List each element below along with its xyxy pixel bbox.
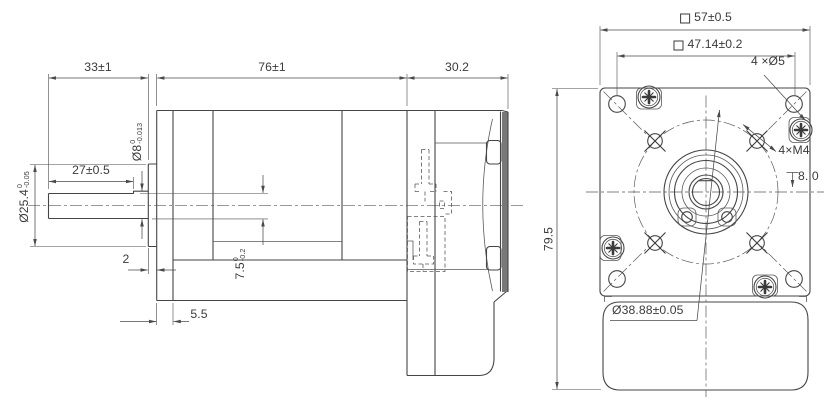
drawing-linework bbox=[0, 0, 840, 400]
dim-flat-length: 27±0.5 bbox=[72, 164, 110, 177]
square-size-value: 57±0.5 bbox=[694, 11, 732, 24]
shaft-dia-tol-lower: -0.013 bbox=[136, 123, 143, 144]
hole-pitch-value: 47.14±0.2 bbox=[687, 38, 742, 51]
rear-housing-outline bbox=[407, 111, 508, 376]
dim-front-length: 33±1 bbox=[84, 61, 111, 74]
square-symbol bbox=[680, 13, 690, 23]
depth-symbol bbox=[787, 173, 799, 188]
rear-cover-strip bbox=[502, 112, 508, 292]
square-symbol bbox=[673, 40, 683, 50]
side-view bbox=[28, 74, 524, 376]
shaft-outline bbox=[49, 191, 149, 218]
hidden-connector-lines bbox=[408, 150, 452, 272]
side-view-dimensions bbox=[30, 74, 508, 325]
dim-hole-pitch: 47.14±0.2 bbox=[673, 38, 742, 53]
flat-height-value: 7.5 bbox=[234, 262, 247, 279]
engineering-drawing: 33±1 76±1 30.2 27±0.5 Ø80-0.013 Ø25.40-0… bbox=[0, 0, 840, 400]
boss-dia-tol-lower: -0.05 bbox=[23, 171, 30, 188]
dim-boss-diameter: Ø25.40-0.05 bbox=[17, 171, 31, 223]
dim-body-length: 76±1 bbox=[258, 61, 285, 74]
shaft-dia-value: Ø8 bbox=[131, 145, 144, 161]
dim-boss-protrusion: 2 bbox=[123, 253, 130, 266]
front-view-dimensions bbox=[552, 26, 810, 390]
dim-bolt-circle: Ø38.88±0.05 bbox=[612, 304, 684, 317]
boss-dia-value: Ø25.4 bbox=[18, 189, 31, 223]
dim-overall-height: 79.5 bbox=[543, 227, 556, 251]
label-tap-depth: 8. 0 bbox=[798, 170, 819, 183]
dim-flat-height: 7.50-0.2 bbox=[233, 248, 247, 279]
dim-rear-length: 30.2 bbox=[445, 61, 469, 74]
rear-clip-top bbox=[487, 141, 502, 165]
dim-shaft-diameter: Ø80-0.013 bbox=[130, 123, 144, 161]
flat-height-tol-lower: -0.2 bbox=[239, 248, 246, 261]
front-view bbox=[552, 26, 824, 397]
dim-flange-thickness: 5.5 bbox=[190, 308, 207, 321]
body-outline bbox=[157, 111, 502, 376]
label-corner-holes: 4 ×Ø5 bbox=[751, 55, 785, 68]
rear-clip-bottom bbox=[487, 247, 502, 271]
dim-square-size: 57±0.5 bbox=[680, 11, 732, 26]
label-tapped-holes: 4×M4 bbox=[778, 144, 809, 157]
